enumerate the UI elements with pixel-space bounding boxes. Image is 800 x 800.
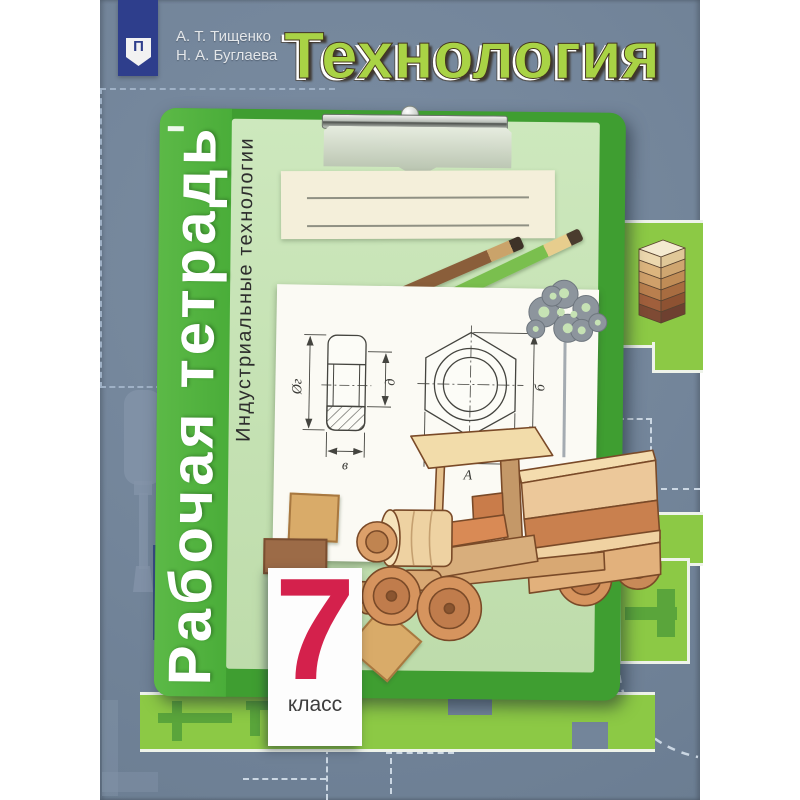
series-title-wrap: Рабочая тетрадь: [154, 112, 232, 697]
publisher-banner: П: [118, 0, 158, 76]
author-line-1: А. Т. Тищенко: [176, 27, 277, 46]
ghost-tool-shaft: [139, 493, 148, 569]
subtitle-wrap: Индустриальные технологии: [230, 139, 263, 439]
dashed-line: [100, 386, 162, 388]
book-title: Технология: [284, 22, 660, 88]
green-print-shape: [652, 342, 703, 373]
dim-label-side-height: д: [383, 378, 398, 385]
dim-label-hex-height: б: [533, 383, 548, 391]
name-plate: [281, 170, 555, 239]
author-line-2: Н. А. Буглаева: [176, 46, 277, 65]
metal-snowflake-ornament-icon: [515, 274, 616, 353]
wood-block: [288, 493, 340, 543]
grade-card: 7 класс: [268, 568, 362, 746]
dashed-line: [100, 88, 102, 388]
dashed-line: [243, 778, 326, 780]
dashed-line: [386, 752, 454, 754]
stacked-wood-panel: [618, 220, 703, 348]
publisher-logo-letter: П: [133, 38, 144, 55]
dim-label-side-width: в: [342, 458, 348, 473]
series-title: Рабочая тетрадь: [155, 123, 230, 685]
band-notch: [572, 722, 608, 749]
band-glyph: [158, 713, 232, 723]
subtitle: Индустриальные технологии: [233, 136, 259, 441]
dashed-line: [326, 748, 328, 800]
stacked-wood-layers-icon: [631, 235, 691, 327]
name-line: [307, 224, 529, 227]
dashed-line: [390, 748, 392, 794]
cover-background: П А. Т. Тищенко Н. А. Буглаева Технологи…: [100, 0, 700, 800]
ghost-tool-tip: [133, 566, 153, 592]
ghost-square-rule: [102, 772, 158, 792]
authors: А. Т. Тищенко Н. А. Буглаева: [176, 27, 277, 65]
band-glyph: [250, 710, 260, 736]
name-line: [307, 196, 529, 199]
publisher-logo-icon: П: [126, 38, 151, 66]
grade-number: 7: [268, 570, 362, 689]
dim-label-diameter: Øг: [290, 378, 305, 395]
wooden-toy-truck-icon: [351, 424, 663, 647]
book-cover-photo: П А. Т. Тищенко Н. А. Буглаева Технологи…: [0, 0, 800, 800]
